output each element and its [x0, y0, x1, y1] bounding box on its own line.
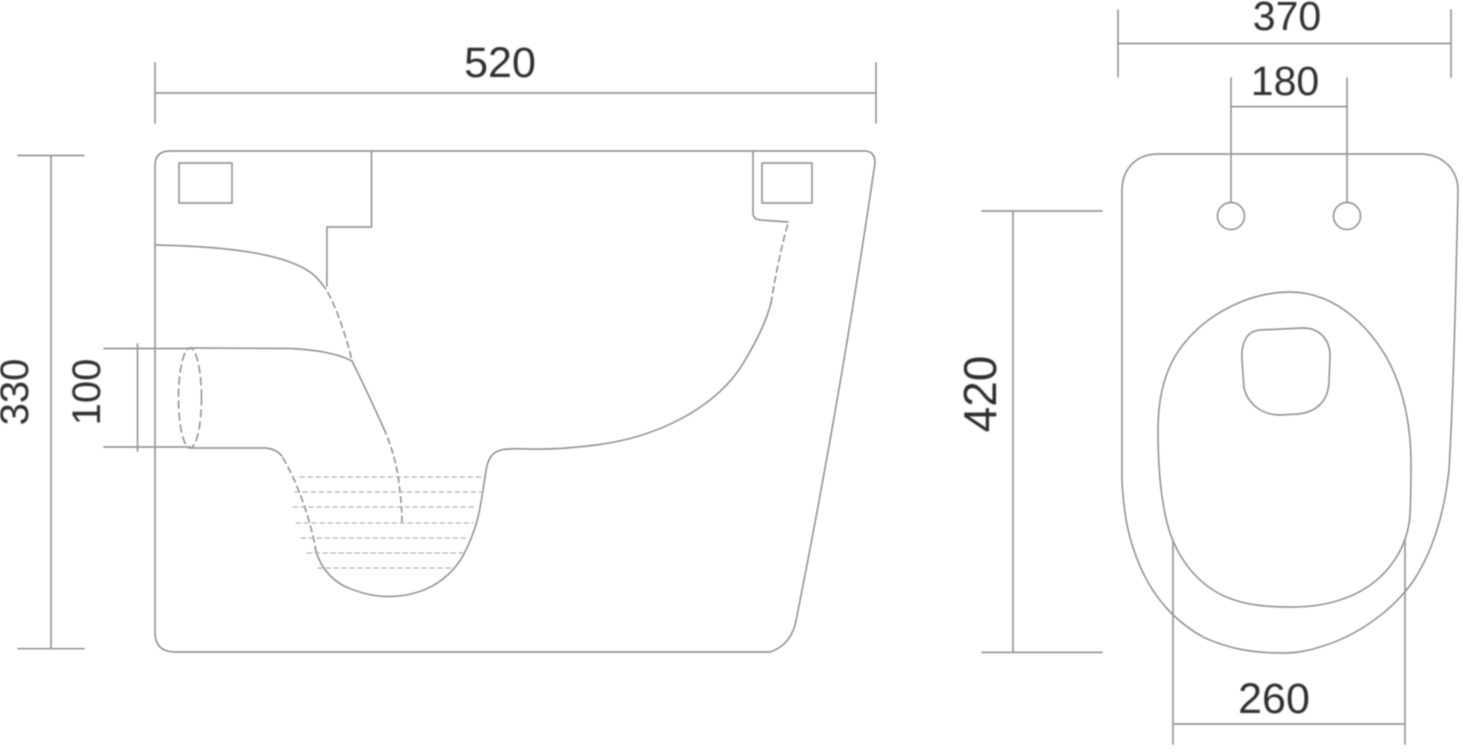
svg-text:330: 330 [0, 359, 37, 426]
svg-text:420: 420 [954, 356, 1006, 433]
svg-text:520: 520 [464, 39, 536, 87]
svg-text:180: 180 [1251, 58, 1319, 104]
svg-text:260: 260 [1238, 675, 1310, 723]
svg-text:100: 100 [65, 359, 109, 426]
svg-text:370: 370 [1253, 0, 1321, 39]
